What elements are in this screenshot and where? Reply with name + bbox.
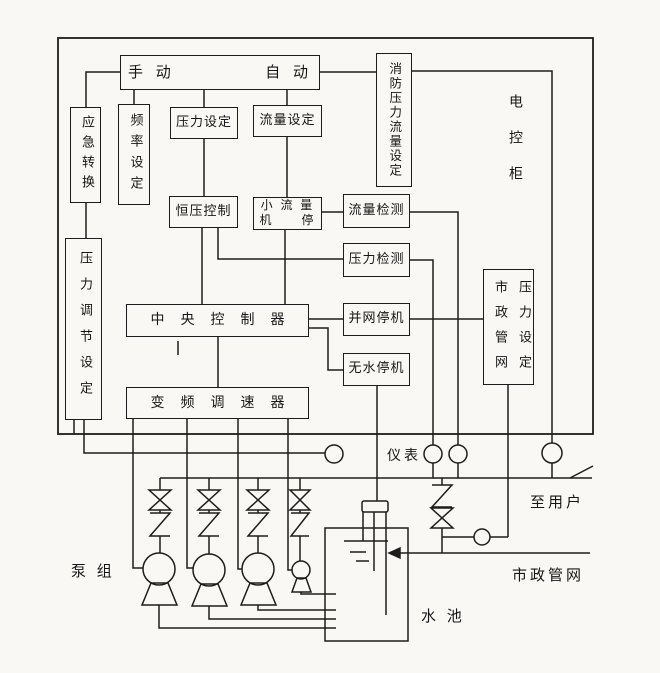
pump-icon [242,553,274,585]
gauge-icon [424,445,442,463]
pump-icon [193,554,225,586]
water-tank [325,528,408,641]
gauge-icon [542,443,562,463]
pump-group [142,478,336,628]
manual-auto-to-emergency-line [86,72,120,107]
pump-base [142,583,177,605]
vfd-power-lines [133,419,292,570]
box-constant-pressure-control: 恒压控制 [169,196,238,228]
level-sensor-icon [344,386,388,615]
gate-valve-icon [149,490,171,510]
auto-label: 自 动 [265,64,312,81]
box-small-flow-stop: 小 流 量 机 停 [253,197,322,230]
pump-base [292,578,311,592]
box-grid-connect-stop: 并网停机 [343,303,410,336]
to-users-arrow-icon [570,466,593,478]
pressure-adjust-sense-line [84,420,325,453]
check-valve-icon [432,485,452,507]
box-fire-pressure-flow-setting: 消防压力流量设定 [376,53,412,187]
box-flow-detection: 流量检测 [343,194,410,228]
box-frequency-setting: 频率设定 [118,104,150,205]
pump-group-label: 泵 组 [71,560,115,581]
gate-valve-icon [290,490,310,510]
to-users-label: 至用户 [530,491,584,512]
box-emergency-transfer: 应急转换 [70,107,101,203]
water-meter-gauge-icon [474,529,490,545]
box-pressure-adjust-setting: 压力调节设定 [65,238,102,420]
box-central-controller: 中央控制器 [126,304,309,337]
pump-icon [143,553,175,585]
small-flow-stop-line2: 机 停 [259,214,315,228]
small-flow-stop-line1: 小 流 量 [261,199,315,213]
box-pressure-detection: 压力检测 [343,243,410,277]
instrument-gauges [325,443,562,463]
check-valve-icon [248,513,268,536]
gate-valve-icon [431,508,453,528]
flow-arrow-icon [389,548,400,558]
gauge-icon [449,445,467,463]
municipal-network-label: 市政管网 [512,564,584,585]
gate-valve-icon [198,490,220,510]
municipal-bypass [431,385,508,553]
box-flow-setting: 流量设定 [253,105,322,137]
box-pressure-setting: 压力设定 [170,107,238,139]
scanned-diagram-page: 手 动 自 动 消防压力流量设定 应急转换 频率设定 压力设定 流量设定 恒压控… [0,0,660,673]
gate-valve-icon [247,490,269,510]
box-no-water-stop: 无水停机 [343,353,410,386]
box-manual-auto: 手 动 自 动 [120,55,320,90]
check-valve-icon [150,513,170,536]
pump-base [192,584,227,606]
pump-icon [292,561,310,579]
gauge-icon [325,445,343,463]
cabinet-label: 电控柜 [505,94,525,189]
check-valve-icon [199,513,219,536]
water-tank-label: 水 池 [421,605,465,626]
pump-base [241,583,276,605]
box-vfd-speed-controller: 变频调速器 [126,387,309,419]
instruments-label: 仪表 [387,445,421,465]
check-valve-icon [291,513,309,536]
manual-label: 手 动 [128,64,175,81]
box-municipal-network-pressure-setting: 市政管网压力设定 [483,269,534,385]
